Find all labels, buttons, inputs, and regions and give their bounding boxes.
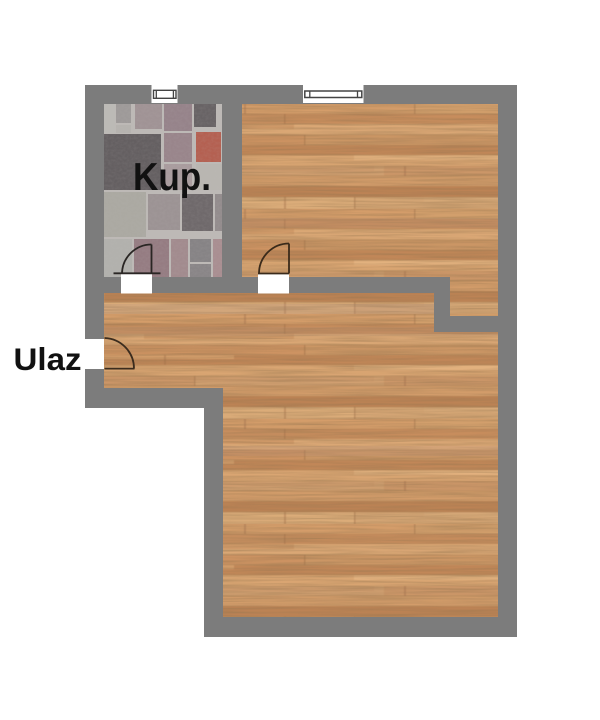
svg-text:Kup.: Kup. [133,156,211,199]
svg-text:Ulaz: Ulaz [14,341,82,377]
